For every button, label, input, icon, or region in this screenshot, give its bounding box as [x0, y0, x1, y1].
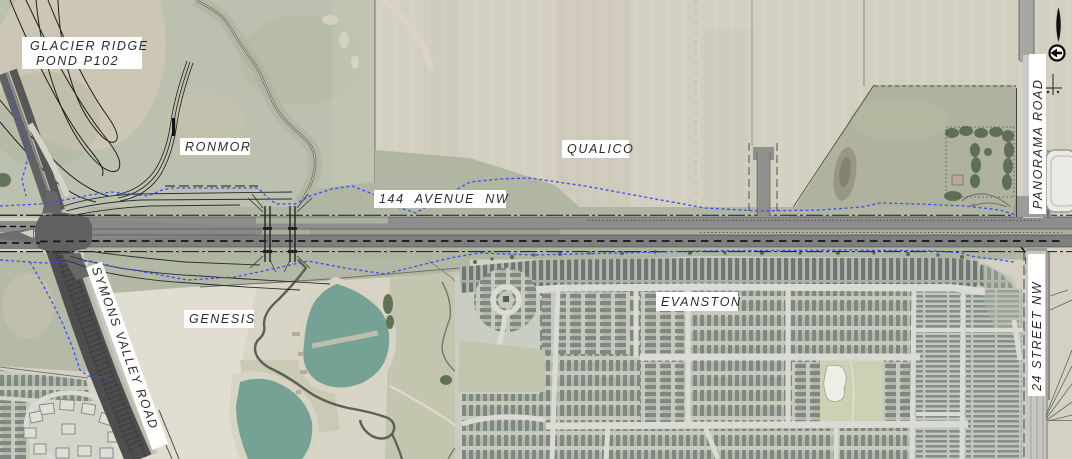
svg-text:PANORAMA ROAD: PANORAMA ROAD — [1031, 78, 1045, 209]
svg-text:EVANSTON: EVANSTON — [661, 295, 742, 309]
svg-text:RONMOR: RONMOR — [185, 140, 252, 154]
svg-text:QUALICO: QUALICO — [567, 142, 634, 156]
svg-text:GLACIER RIDGE: GLACIER RIDGE — [30, 39, 149, 53]
svg-text:GENESIS: GENESIS — [189, 312, 256, 326]
svg-text:POND P102: POND P102 — [36, 54, 119, 68]
svg-text:144 AVENUE NW: 144 AVENUE NW — [379, 192, 509, 206]
svg-text:24 STREET NW: 24 STREET NW — [1030, 281, 1044, 392]
